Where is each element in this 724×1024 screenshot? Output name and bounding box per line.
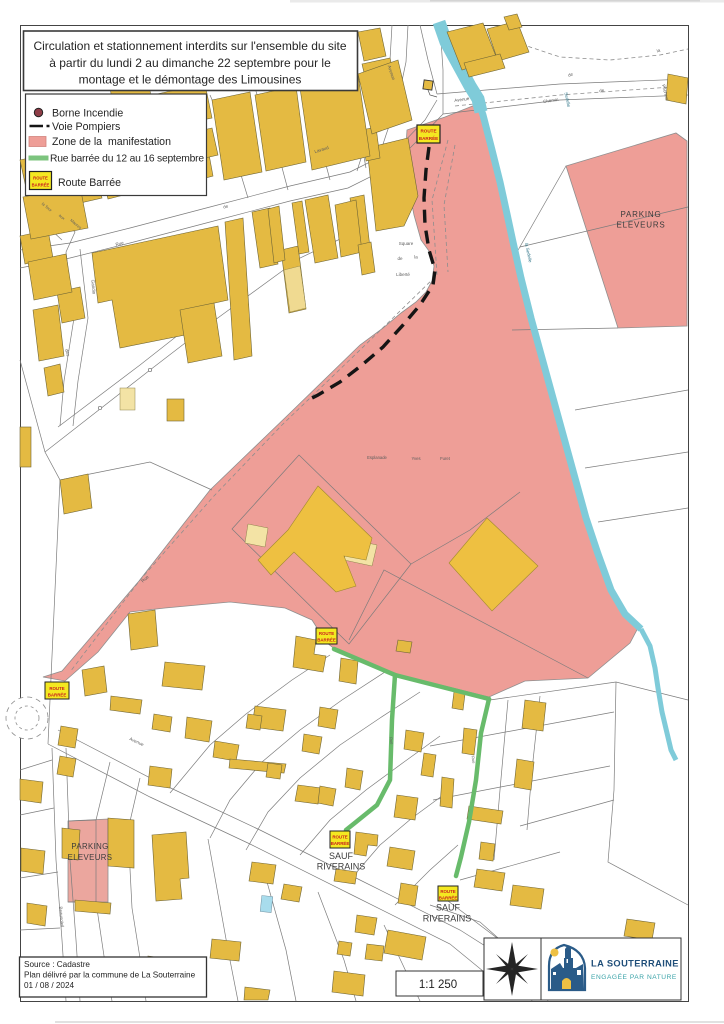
svg-text:Rue barrée du 12 au 16 septemb: Rue barrée du 12 au 16 septembre — [50, 154, 204, 165]
svg-text:ROUTE: ROUTE — [332, 835, 347, 840]
svg-text:ROUTE: ROUTE — [440, 889, 455, 894]
svg-text:Source : Cadastre: Source : Cadastre — [24, 960, 90, 969]
svg-text:BARRÉE: BARRÉE — [331, 841, 350, 846]
svg-text:PARKING: PARKING — [620, 210, 661, 219]
svg-text:BARRÉE: BARRÉE — [32, 183, 50, 188]
svg-text:1:1 250: 1:1 250 — [419, 979, 457, 991]
svg-text:RIVERAINS: RIVERAINS — [423, 914, 472, 924]
svg-text:à partir du lundi 2 au dimanch: à partir du lundi 2 au dimanche 22 septe… — [49, 56, 331, 70]
svg-text:ROUTE: ROUTE — [49, 686, 64, 691]
svg-text:BARRÉE: BARRÉE — [48, 693, 67, 698]
svg-text:Liberté: Liberté — [396, 272, 410, 277]
svg-text:de: de — [397, 256, 403, 261]
svg-text:ROUTE: ROUTE — [33, 176, 48, 181]
svg-text:SAUF: SAUF — [436, 903, 461, 913]
svg-text:ROUTE: ROUTE — [319, 631, 334, 636]
svg-text:01 / 08 / 2024: 01 / 08 / 2024 — [24, 981, 75, 990]
svg-text:Zone de la manifestation: Zone de la manifestation — [52, 136, 171, 148]
svg-text:BARRÉE: BARRÉE — [419, 134, 438, 141]
svg-text:Route Barrée: Route Barrée — [58, 177, 121, 189]
svg-text:PARKING: PARKING — [71, 842, 108, 851]
svg-text:Circulation et stationnement i: Circulation et stationnement interdits s… — [33, 39, 346, 53]
svg-text:ROUTE: ROUTE — [420, 129, 436, 134]
svg-text:ELEVEURS: ELEVEURS — [616, 221, 665, 230]
svg-text:montage et le démontage des Li: montage et le démontage des Limousines — [79, 73, 302, 87]
svg-text:Yves: Yves — [411, 456, 420, 461]
svg-text:BARRÉE: BARRÉE — [317, 638, 336, 643]
svg-text:Voie Pompiers: Voie Pompiers — [52, 121, 120, 133]
svg-text:SAUF: SAUF — [329, 851, 354, 861]
svg-text:Esplanade: Esplanade — [367, 455, 387, 460]
svg-text:Plan délivré par la commune de: Plan délivré par la commune de La Souter… — [24, 971, 196, 980]
svg-text:BARRÉE: BARRÉE — [439, 896, 458, 901]
svg-text:Borne Incendie: Borne Incendie — [52, 108, 123, 120]
svg-text:Furet: Furet — [440, 456, 451, 461]
svg-text:RIVERAINS: RIVERAINS — [317, 862, 366, 872]
svg-text:la: la — [414, 255, 418, 260]
svg-text:ELEVEURS: ELEVEURS — [68, 853, 113, 862]
svg-text:ENGAGÉE PAR NATURE: ENGAGÉE PAR NATURE — [591, 972, 677, 981]
svg-text:LA SOUTERRAINE: LA SOUTERRAINE — [591, 959, 679, 969]
svg-text:Square: Square — [399, 241, 414, 246]
